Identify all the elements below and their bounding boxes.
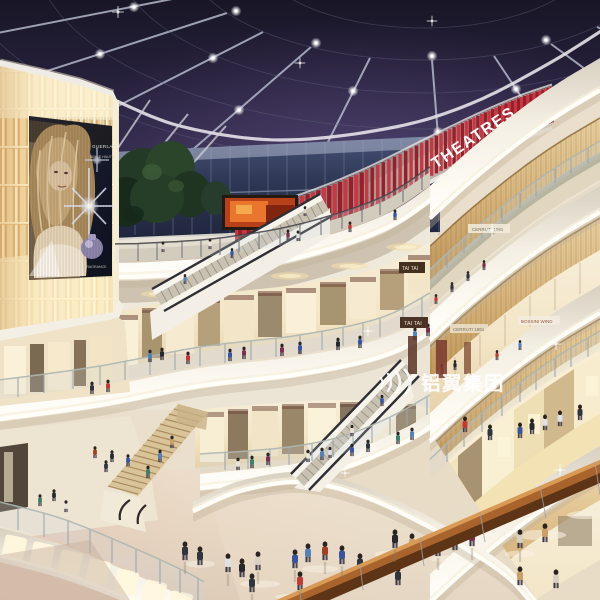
- svg-text:FRAGRANCE: FRAGRANCE: [84, 265, 107, 269]
- svg-text:BOSSINI WIND: BOSSINI WIND: [521, 319, 553, 324]
- svg-text:TAI TAI: TAI TAI: [404, 321, 422, 327]
- svg-text:TAI TAI: TAI TAI: [402, 266, 418, 272]
- svg-text:CERRUTI 1881: CERRUTI 1881: [453, 327, 485, 332]
- svg-text:铝翼集团: 铝翼集团: [421, 372, 505, 395]
- svg-text:CERRUTI 1881: CERRUTI 1881: [472, 227, 504, 232]
